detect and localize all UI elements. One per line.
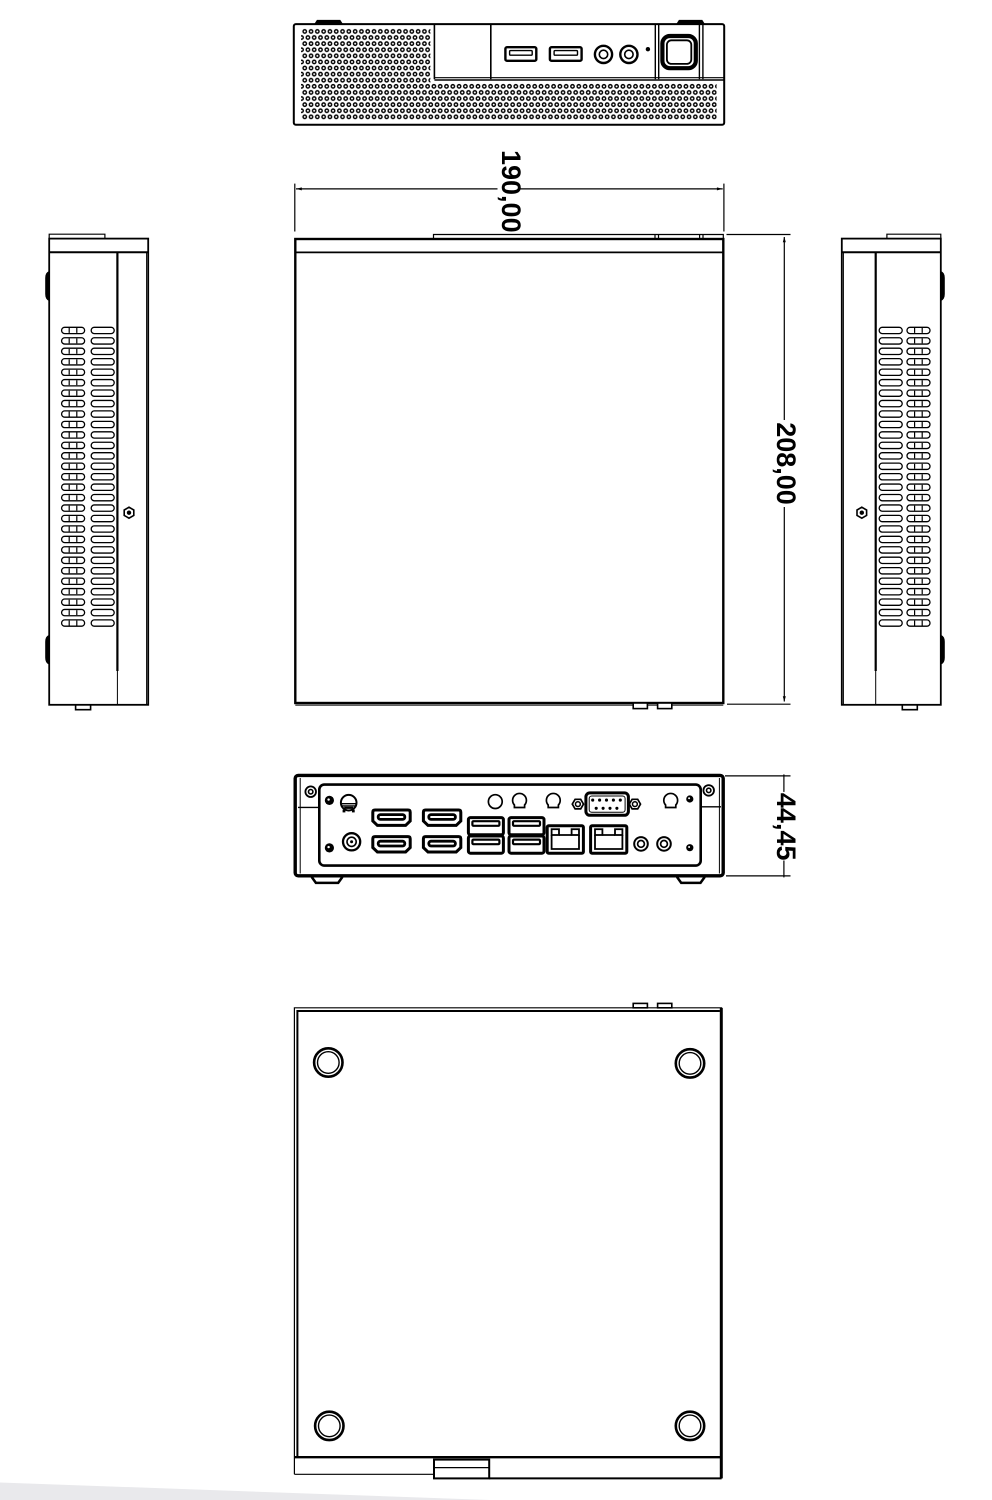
svg-text:190,00: 190,00 bbox=[496, 150, 526, 233]
svg-text:208,00: 208,00 bbox=[771, 422, 801, 505]
svg-text:44,45: 44,45 bbox=[771, 793, 801, 861]
